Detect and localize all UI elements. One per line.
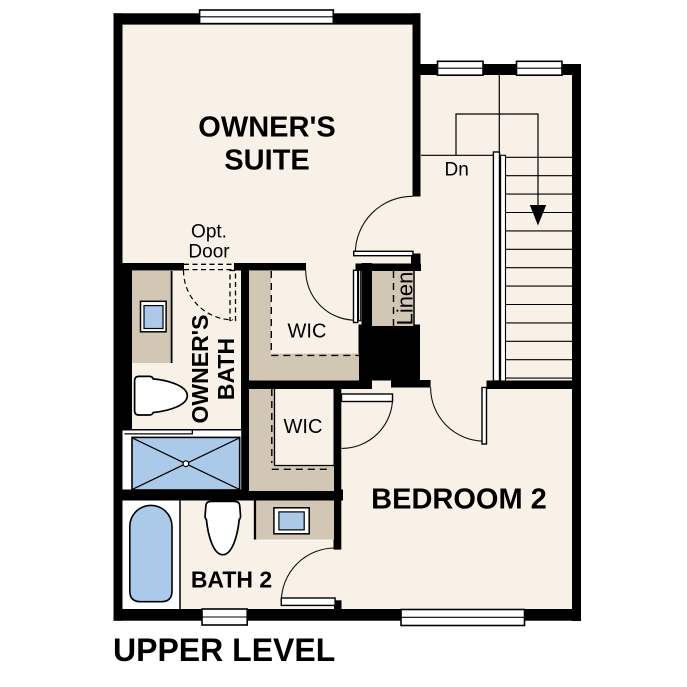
svg-text:UPPER LEVEL: UPPER LEVEL	[113, 632, 335, 668]
svg-text:WIC: WIC	[288, 321, 327, 343]
svg-text:Opt.: Opt.	[191, 222, 227, 243]
svg-text:Linen: Linen	[393, 272, 418, 326]
svg-text:BEDROOM 2: BEDROOM 2	[371, 484, 547, 516]
svg-text:WIC: WIC	[284, 416, 323, 438]
svg-text:OWNER'S: OWNER'S	[187, 315, 213, 424]
svg-text:SUITE: SUITE	[224, 145, 309, 177]
svg-text:BATH 2: BATH 2	[191, 567, 272, 593]
svg-text:Door: Door	[188, 242, 230, 263]
svg-text:OWNER'S: OWNER'S	[198, 112, 335, 144]
svg-text:BATH: BATH	[213, 338, 239, 400]
svg-text:Dn: Dn	[445, 160, 469, 181]
